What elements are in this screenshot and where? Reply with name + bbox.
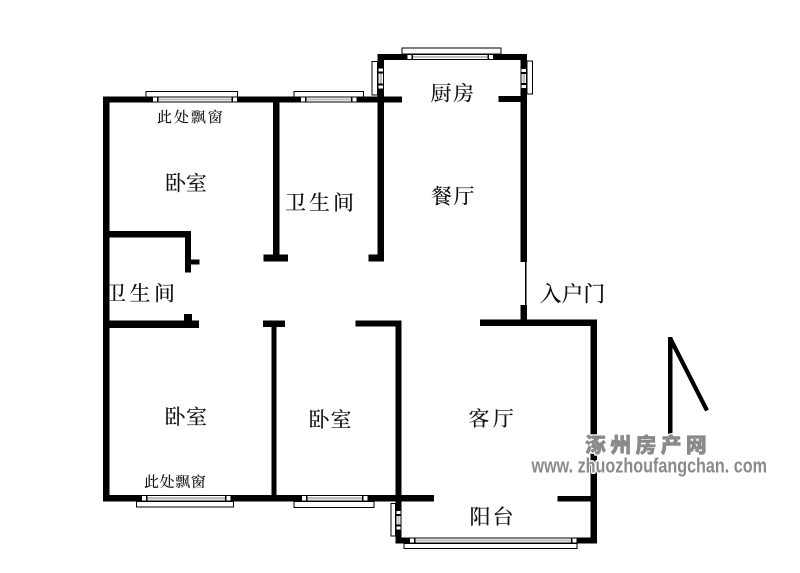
svg-text:www. zhuozhoufangchan. com: www. zhuozhoufangchan. com bbox=[531, 456, 767, 478]
